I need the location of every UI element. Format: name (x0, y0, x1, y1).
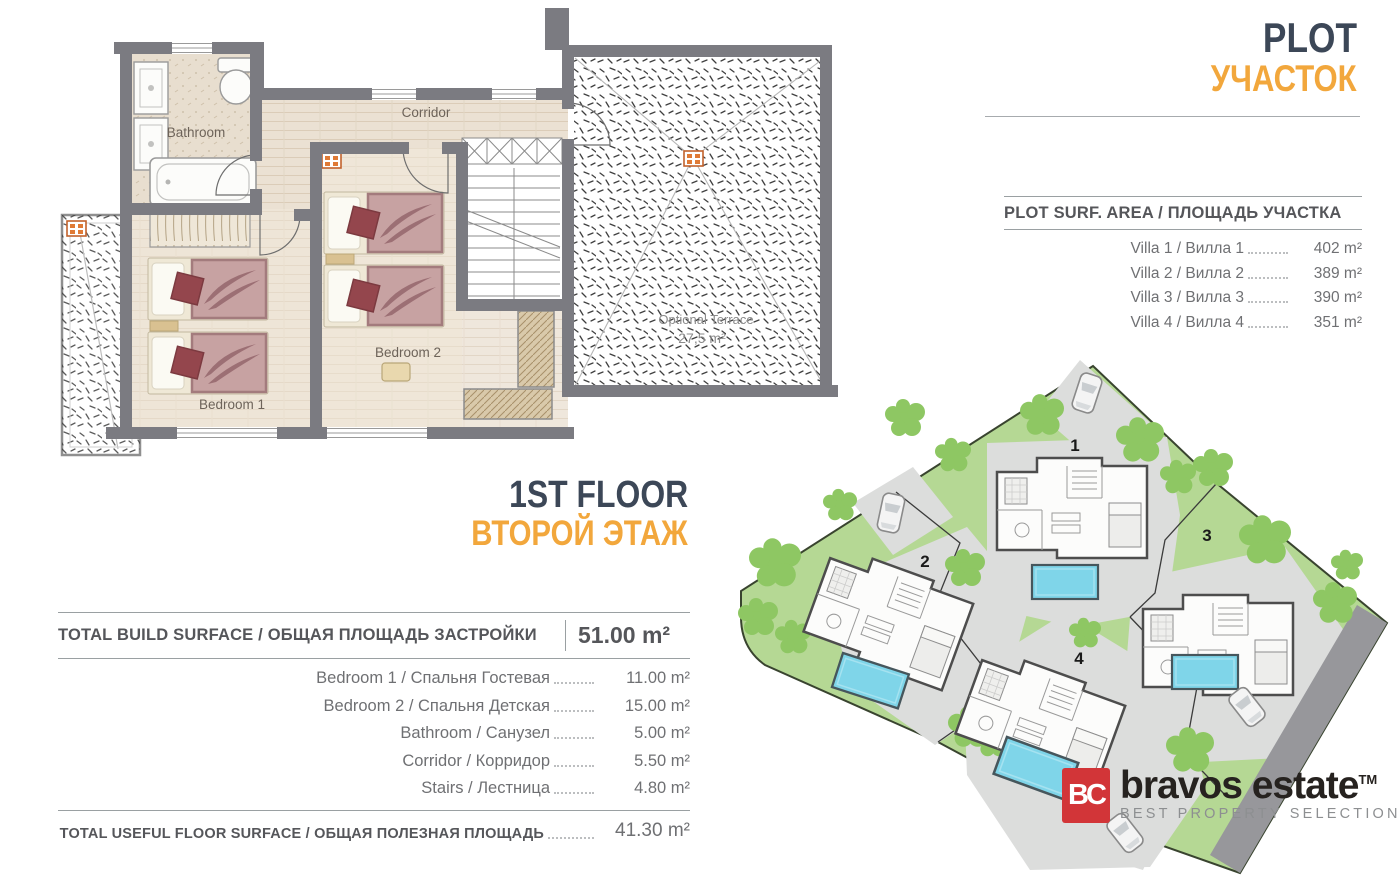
table-row: Stairs / Лестница 4.80 m² (58, 779, 690, 798)
floor-title-ru: ВТОРОЙ ЭТАЖ (472, 516, 688, 552)
table-row: Bedroom 1 / Спальня Гостевая 11.00 m² (58, 669, 690, 688)
dotted-leader (554, 792, 594, 794)
logo-name: bravos estateTM (1120, 769, 1400, 803)
build-table-header-label: TOTAL BUILD SURFACE / ОБЩАЯ ПЛОЩАДЬ ЗАСТ… (58, 626, 565, 645)
wall-tab (545, 8, 569, 50)
build-table-rows: Bedroom 1 / Спальня Гостевая 11.00 m² Be… (58, 669, 690, 798)
dotted-leader (1248, 277, 1288, 279)
dotted-leader (554, 765, 594, 767)
logo-tagline: BEST PROPERTY SELECTION (1120, 806, 1400, 822)
build-table-header-value: 51.00 m² (565, 620, 690, 651)
row-label: Villa 4 / Вилла 4 (1131, 314, 1245, 332)
logo-monogram: BC (1062, 768, 1110, 823)
dotted-leader (1248, 301, 1288, 303)
row-label: Villa 2 / Вилла 2 (1131, 265, 1245, 283)
row-value: 390 m² (1292, 289, 1362, 307)
row-value: 389 m² (1292, 265, 1362, 283)
row-value: 351 m² (1292, 314, 1362, 332)
sink (134, 62, 168, 114)
table-row: Corridor / Корридор 5.50 m² (58, 752, 690, 771)
plot-table-rows: Villa 1 / Вилла 1 402 m² Villa 2 / Вилла… (1004, 240, 1362, 332)
plot-title-en: PLOT (1263, 16, 1357, 60)
optional-terrace: Optional Terrace 27,5 m² (568, 51, 832, 391)
row-label: Villa 3 / Вилла 3 (1131, 289, 1245, 307)
stool (382, 363, 410, 381)
footer-value: 41.30 m² (598, 820, 690, 842)
build-table-header: TOTAL BUILD SURFACE / ОБЩАЯ ПЛОЩАДЬ ЗАСТ… (58, 612, 690, 659)
villa-number-3: 3 (1202, 526, 1211, 545)
row-value: 15.00 m² (598, 697, 690, 716)
dotted-leader (554, 682, 594, 684)
bedroom2-bed-a (324, 192, 444, 254)
bedroom2-label: Bedroom 2 (375, 345, 441, 360)
dotted-leader (554, 710, 594, 712)
row-value: 11.00 m² (598, 669, 690, 688)
dotted-leader (554, 737, 594, 739)
table-row: Bedroom 2 / Спальня Детская 15.00 m² (58, 697, 690, 716)
villa-number-4: 4 (1074, 649, 1084, 668)
build-table-footer: TOTAL USEFUL FLOOR SURFACE / ОБЩАЯ ПОЛЕЗ… (58, 810, 690, 842)
table-row: Villa 2 / Вилла 2 389 m² (1004, 265, 1362, 283)
villa-number-1: 1 (1070, 436, 1079, 455)
floor-title-en: 1ST FLOOR (509, 476, 688, 516)
dotted-leader (1248, 252, 1288, 254)
villa-1-footprint (997, 458, 1147, 558)
plot-title-divider (985, 116, 1360, 117)
row-value: 5.00 m² (598, 724, 690, 743)
terrace-area-label: 27,5 m² (678, 330, 726, 346)
terrace-label: Optional Terrace (658, 312, 753, 327)
table-row: Villa 1 / Вилла 1 402 m² (1004, 240, 1362, 258)
plot-title: PLOT УЧАСТОК (1017, 16, 1357, 98)
hall-floor (256, 148, 316, 215)
table-row: Villa 4 / Вилла 4 351 m² (1004, 314, 1362, 332)
bedroom1-bed-a (148, 258, 268, 320)
footer-label: TOTAL USEFUL FLOOR SURFACE / ОБЩАЯ ПОЛЕЗ… (60, 826, 544, 842)
villa-number-2: 2 (920, 552, 929, 571)
table-row: Bathroom / Санузел 5.00 m² (58, 724, 690, 743)
row-label: Bedroom 2 / Спальня Детская (324, 697, 550, 716)
bedroom2-heater (322, 153, 341, 168)
row-value: 402 m² (1292, 240, 1362, 258)
toilet (218, 58, 254, 104)
villa-1-pool (1032, 565, 1098, 599)
row-label: Corridor / Корридор (402, 752, 550, 771)
nightstand (150, 321, 178, 331)
dotted-leader (548, 837, 594, 839)
plot-table-header: PLOT SURF. AREA / ПЛОЩАДЬ УЧАСТКА (1004, 196, 1362, 230)
bedroom2-bed-b (324, 265, 444, 327)
plot-surface-table: PLOT SURF. AREA / ПЛОЩАДЬ УЧАСТКА Villa … (1004, 196, 1362, 338)
logo-text: bravos estateTM BEST PROPERTY SELECTION (1120, 768, 1400, 822)
corridor-label: Corridor (402, 105, 451, 120)
bathtub (150, 158, 256, 206)
row-value: 4.80 m² (598, 779, 690, 798)
villa-3-pool (1172, 655, 1238, 689)
row-label: Stairs / Лестница (421, 779, 550, 798)
bedroom1-label: Bedroom 1 (199, 397, 265, 412)
company-logo: BC bravos estateTM BEST PROPERTY SELECTI… (1062, 768, 1400, 823)
bathroom-label: Bathroom (167, 125, 226, 140)
plot-title-ru: УЧАСТОК (1211, 60, 1357, 98)
logo-name-text: bravos estate (1120, 764, 1358, 807)
row-label: Villa 1 / Вилла 1 (1131, 240, 1245, 258)
row-label: Bedroom 1 / Спальня Гостевая (316, 669, 550, 688)
build-surface-table: TOTAL BUILD SURFACE / ОБЩАЯ ПЛОЩАДЬ ЗАСТ… (58, 612, 690, 842)
brochure-page: Optional Terrace 27,5 m² (0, 0, 1400, 875)
bedroom1-bed-b (148, 332, 268, 394)
dotted-leader (1248, 326, 1288, 328)
floor-title: 1ST FLOOR ВТОРОЙ ЭТАЖ (368, 476, 688, 552)
floor-plan: Optional Terrace 27,5 m² (50, 5, 840, 475)
row-value: 5.50 m² (598, 752, 690, 771)
nightstand (326, 254, 354, 264)
table-row: Villa 3 / Вилла 3 390 m² (1004, 289, 1362, 307)
row-label: Bathroom / Санузел (400, 724, 550, 743)
trademark-symbol: TM (1358, 772, 1377, 787)
